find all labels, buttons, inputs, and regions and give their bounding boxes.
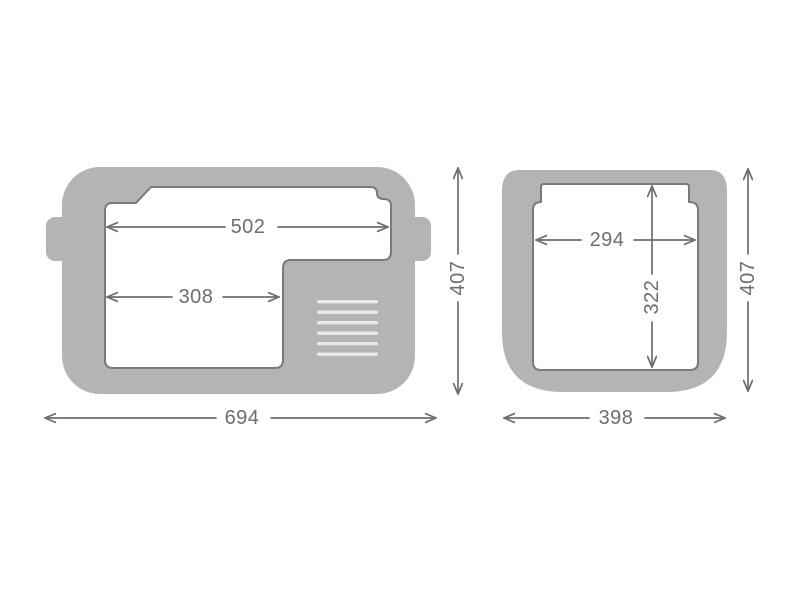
dim-label-inner-base-width: 308 [179, 286, 214, 308]
vent-slat [317, 321, 378, 324]
vent-slat [317, 353, 378, 356]
dim-label-overall-height-side: 407 [447, 261, 469, 296]
diagram-canvas: 502 308 694 407 294 322 398 407 [0, 0, 800, 595]
dim-label-inner-depth: 322 [641, 280, 663, 315]
dimension-diagram: 502 308 694 407 294 322 398 407 [0, 0, 800, 595]
dim-label-overall-width-front: 398 [599, 407, 634, 429]
vent-slat [317, 311, 378, 314]
vent-slat [317, 342, 378, 345]
front-view-cavity [533, 184, 698, 370]
vent-slat [317, 300, 378, 303]
side-view [46, 167, 431, 394]
dim-label-inner-top-width: 502 [231, 216, 266, 238]
dim-label-overall-height-front: 407 [737, 261, 759, 296]
front-view [502, 170, 727, 392]
dim-label-overall-width-side: 694 [225, 407, 260, 429]
vent-slat [317, 332, 378, 335]
dim-label-inner-width: 294 [590, 229, 625, 251]
